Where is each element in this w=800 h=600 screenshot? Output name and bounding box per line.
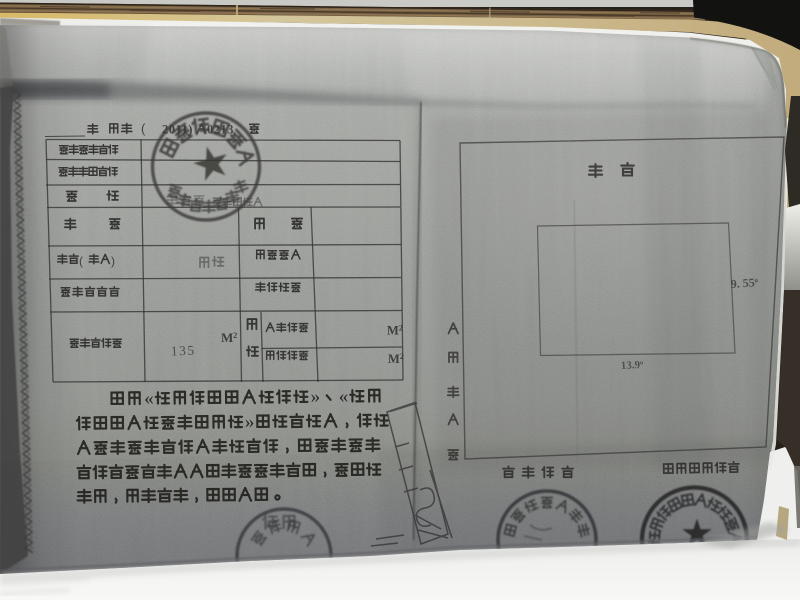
svg-text:): ) <box>111 254 115 268</box>
svg-text:»: » <box>245 412 255 433</box>
svg-text:135: 135 <box>171 343 196 359</box>
svg-text:(: ( <box>141 121 146 136</box>
svg-text:13.9o: 13.9o <box>621 359 644 372</box>
svg-text:»: » <box>310 387 320 408</box>
svg-text:9. 55o: 9. 55o <box>730 275 759 291</box>
svg-text:(: ( <box>79 254 83 268</box>
svg-text:«: « <box>144 388 154 409</box>
svg-text:«: « <box>339 386 349 407</box>
